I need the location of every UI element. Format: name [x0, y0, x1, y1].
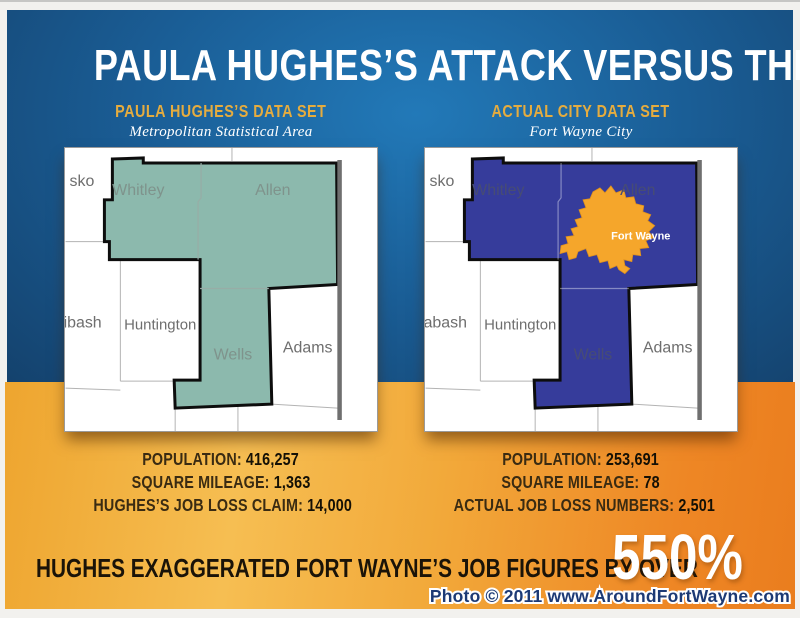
photo-credit-watermark: Photo © 2011 www.AroundFortWayne.com [430, 586, 790, 607]
label-huntington: Huntington [484, 316, 556, 333]
city-map-panel: sko Whitley Allen abash Huntington Wells… [424, 147, 738, 432]
label-fort-wayne: Fort Wayne [611, 231, 670, 243]
stat-label: HUGHES’S JOB LOSS CLAIM: [93, 495, 303, 515]
stat-square-mileage: SQUARE MILEAGE:78 [425, 471, 737, 494]
city-map: sko Whitley Allen abash Huntington Wells… [425, 148, 737, 431]
infographic-page: PAULA HUGHES’S ATTACK VERSUS THE FACTS P… [0, 0, 800, 618]
stat-population: POPULATION:416,257 [65, 448, 377, 471]
stat-square-mileage: SQUARE MILEAGE:1,363 [65, 471, 377, 494]
stat-value: 416,257 [246, 449, 299, 469]
label-wells: Wells [574, 346, 613, 363]
label-adams: Adams [643, 339, 693, 356]
stat-label: SQUARE MILEAGE: [132, 472, 270, 492]
label-whitley: Whitley [472, 182, 524, 199]
footer-percent: 550% [612, 526, 776, 588]
footer-percent-text: 550% [612, 526, 743, 588]
left-subheading: Metropolitan Statistical Area [65, 124, 377, 141]
page-title: PAULA HUGHES’S ATTACK VERSUS THE FACTS [0, 44, 800, 88]
stat-actual-job-loss: ACTUAL JOB LOSS NUMBERS:2,501 [425, 494, 737, 517]
right-column-header: ACTUAL CITY DATA SET Fort Wayne City [425, 101, 737, 141]
label-allen: Allen [255, 182, 290, 199]
page-title-text: PAULA HUGHES’S ATTACK VERSUS THE FACTS [94, 44, 800, 88]
label-kosciusko: sko [430, 173, 455, 190]
stat-value: 2,501 [678, 495, 715, 515]
left-heading: PAULA HUGHES’S DATA SET [115, 101, 326, 122]
stat-population: POPULATION:253,691 [425, 448, 737, 471]
left-column-header: PAULA HUGHES’S DATA SET Metropolitan Sta… [65, 101, 377, 141]
label-wabash: ibash [65, 314, 102, 331]
msa-stats: POPULATION:416,257 SQUARE MILEAGE:1,363 … [65, 448, 377, 517]
label-huntington: Huntington [124, 316, 196, 333]
city-stats: POPULATION:253,691 SQUARE MILEAGE:78 ACT… [425, 448, 737, 517]
stat-label: POPULATION: [503, 449, 603, 469]
footer-headline-text: HUGHES EXAGGERATED FORT WAYNE’S JOB FIGU… [36, 553, 698, 583]
label-whitley: Whitley [112, 182, 164, 199]
stat-value: 14,000 [307, 495, 352, 515]
label-kosciusko: sko [70, 173, 95, 190]
msa-map-panel: sko Whitley Allen ibash Huntington Wells… [64, 147, 378, 432]
stat-label: ACTUAL JOB LOSS NUMBERS: [454, 495, 675, 515]
stat-label: SQUARE MILEAGE: [502, 472, 640, 492]
label-wabash: abash [425, 314, 467, 331]
label-adams: Adams [283, 339, 333, 356]
msa-map: sko Whitley Allen ibash Huntington Wells… [65, 148, 377, 431]
stat-job-loss-claim: HUGHES’S JOB LOSS CLAIM:14,000 [65, 494, 377, 517]
stat-value: 1,363 [274, 472, 311, 492]
label-allen: Allen [620, 182, 655, 199]
stat-label: POPULATION: [143, 449, 243, 469]
right-subheading: Fort Wayne City [425, 124, 737, 141]
right-heading: ACTUAL CITY DATA SET [492, 101, 670, 122]
stat-value: 78 [644, 472, 660, 492]
label-wells: Wells [214, 346, 253, 363]
stat-value: 253,691 [606, 449, 659, 469]
